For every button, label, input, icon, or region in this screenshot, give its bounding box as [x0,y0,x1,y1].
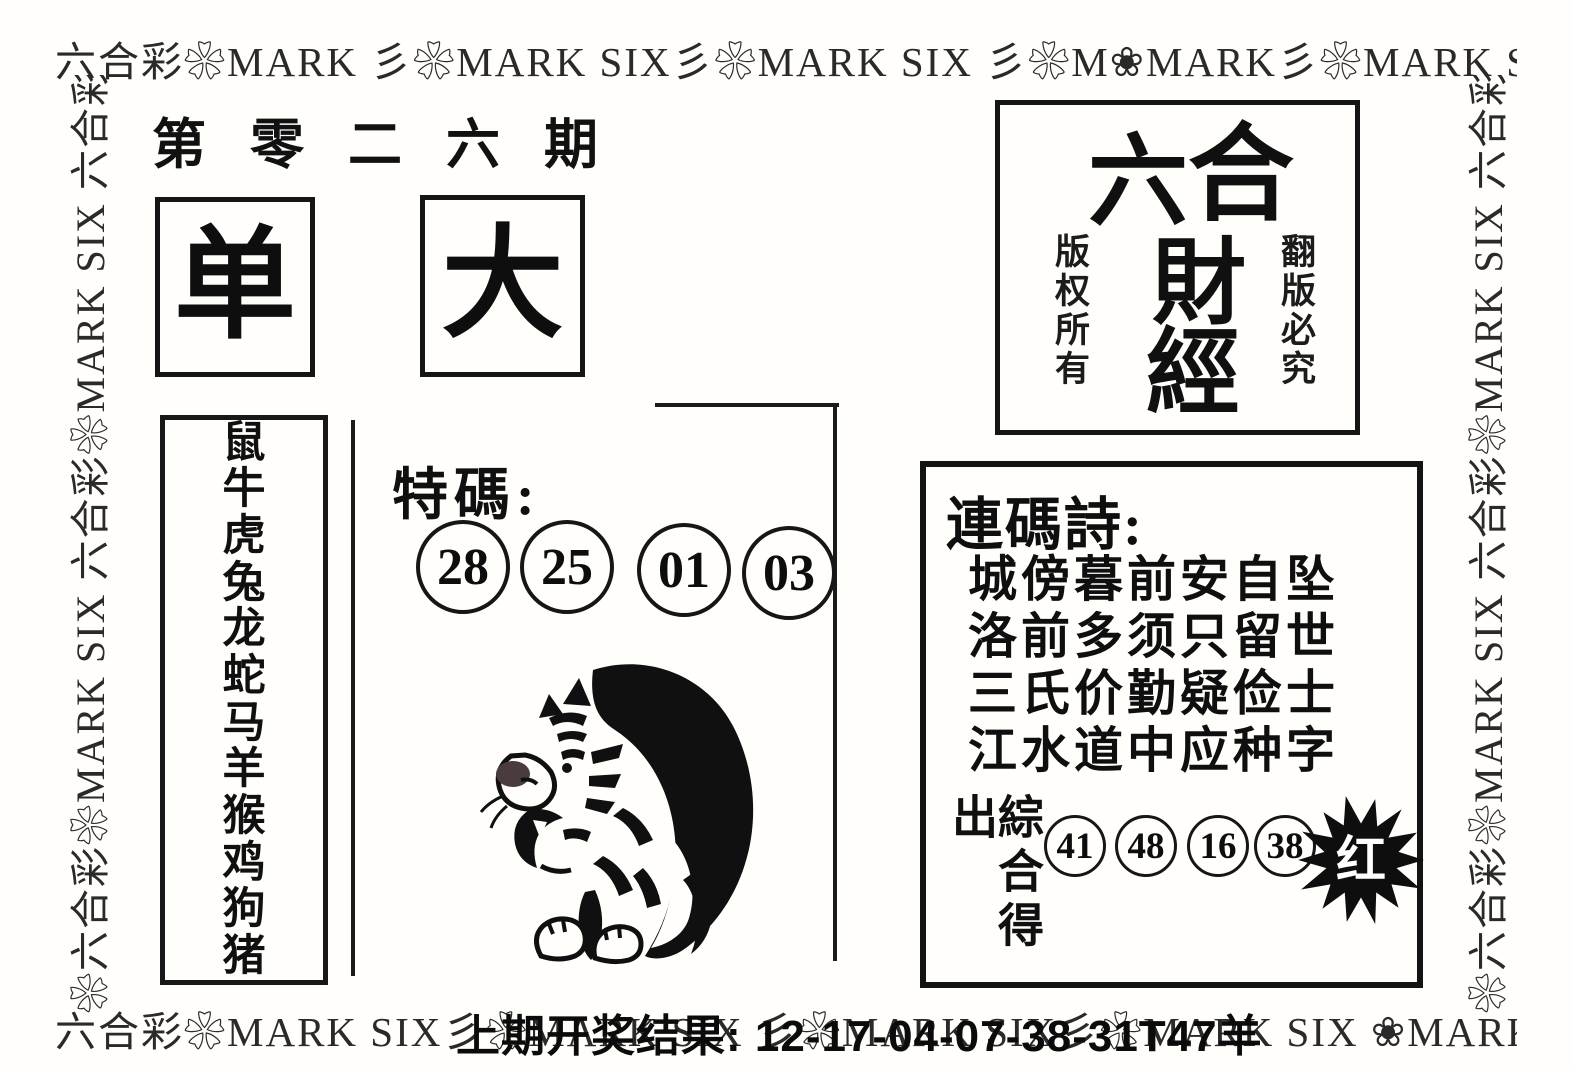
poem-body: 城傍暮前安自坠 洛前多须只留世 三氏价勤疑俭士 江水道中应种字 [968,551,1339,779]
zodiac-item-rooster: 鸡 [223,842,266,885]
poem-line: 江水道中应种字 [968,722,1339,779]
border-right-marksix: ❀六合彩❀MARK SIX 六合彩❀MARK SIX 六合彩❀❀ [1456,75,1514,1013]
special-code-value: 03 [763,544,815,603]
center-top-rule [655,403,839,407]
zodiac-item-ox: 牛 [223,468,266,511]
logo-char-3: 財 [1152,237,1246,331]
result-ball: 41 [1044,815,1106,877]
summary-label: 綜合得出 [948,793,1040,993]
special-code-ball: 03 [742,526,836,620]
logo-char-1: 六 [1088,133,1188,233]
special-code-ball: 25 [520,520,614,614]
logo-char-4: 經 [1146,327,1240,421]
zodiac-item-dragon: 龙 [223,608,266,651]
zodiac-item-rat: 鼠 [223,422,266,465]
result-ball-value: 16 [1200,825,1237,868]
zodiac-item-rabbit: 兔 [223,562,266,605]
tiger-nose-patch [496,761,530,787]
zodiac-panel: 鼠 牛 虎 兔 龙 蛇 马 羊 猴 鸡 狗 猪 [160,415,328,985]
last-draw-result: 上期开奖结果: 12-17-04-07-38-31T47羊 [456,1000,1263,1064]
issue-title: 第零二六期 [152,100,642,179]
zodiac-item-monkey: 猴 [223,795,266,838]
result-ball-value: 48 [1128,825,1165,868]
copyright-note: 版权所有 [1052,233,1087,423]
odd-indicator-label: 单 [174,226,296,348]
special-code-value: 28 [437,538,489,597]
special-code-value: 25 [541,538,593,597]
poem-line: 城傍暮前安自坠 [968,551,1339,608]
tiger-ink-illustration [445,660,775,970]
center-right-rule [833,403,837,961]
border-top-marksix: 六合彩❀MARK 彡❀MARK SIX彡❀MARK SIX 彡❀M❀MARK彡❀… [55,28,1517,88]
logo-box: 六 合 財 經 版权所有 翻版必究 [995,100,1360,435]
special-code-ball: 01 [637,523,731,617]
poem-panel: 連碼詩: 城傍暮前安自坠 洛前多须只留世 三氏价勤疑俭士 江水道中应种字 綜合得… [920,461,1423,988]
burst-label: 红 [1336,835,1386,885]
zodiac-item-dog: 狗 [223,888,266,931]
result-ball-value: 41 [1057,825,1094,868]
lottery-flyer-page: 六合彩❀MARK 彡❀MARK SIX彡❀MARK SIX 彡❀M❀MARK彡❀… [0,0,1572,1069]
big-indicator-box: 大 [420,195,585,377]
result-ball: 16 [1187,815,1249,877]
poem-line: 洛前多须只留世 [968,608,1339,665]
anti-piracy-note: 翻版必究 [1278,233,1313,423]
poem-title: 連碼詩: [946,479,1144,561]
border-left-marksix: ❀六合彩❀MARK SIX 六合彩❀MARK SIX 六合彩❀❀ [58,75,116,1013]
special-code-ball: 28 [416,520,510,614]
special-code-label: 特碼: [392,450,541,531]
zodiac-item-tiger: 虎 [223,515,266,558]
zodiac-item-snake: 蛇 [223,655,266,698]
zodiac-item-goat: 羊 [223,748,266,791]
zodiac-item-pig: 猪 [223,935,266,978]
odd-indicator-box: 单 [155,197,315,377]
logo-char-2: 合 [1188,123,1294,229]
big-indicator-label: 大 [442,225,564,347]
result-ball: 48 [1115,815,1177,877]
red-burst-badge: 红 [1294,793,1428,927]
poem-line: 三氏价勤疑俭士 [968,665,1339,722]
zodiac-item-horse: 马 [223,702,266,745]
special-code-value: 01 [658,541,710,600]
divider-line-left-of-center [351,420,355,976]
